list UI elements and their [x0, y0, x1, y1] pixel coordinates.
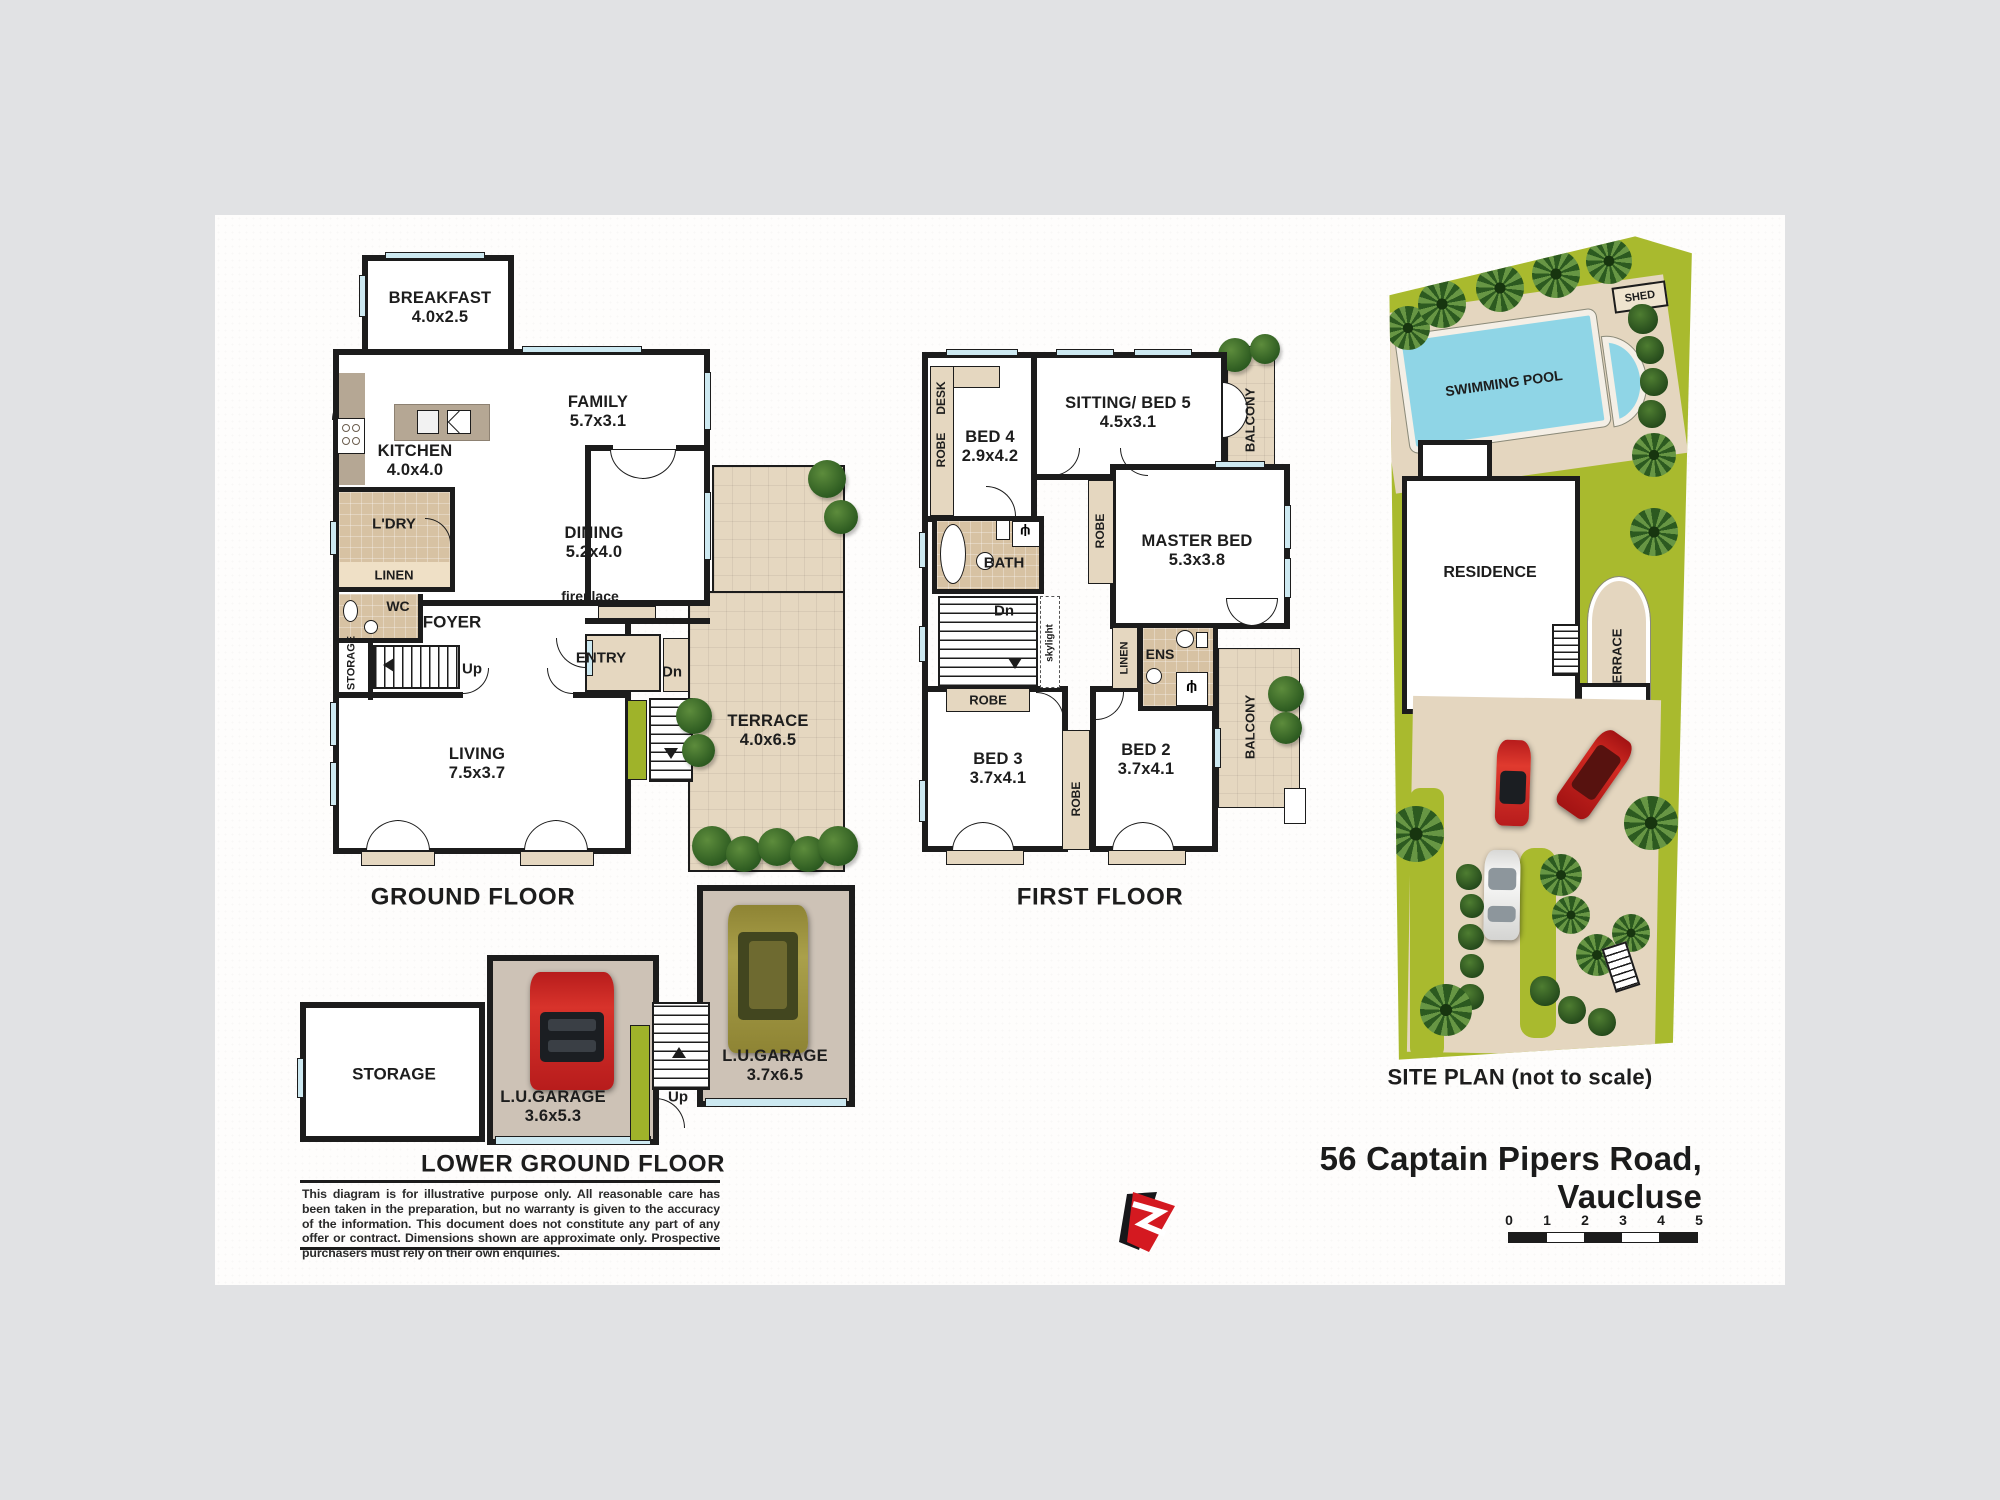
garage-door — [705, 1098, 847, 1107]
door-step-pad — [946, 850, 1024, 865]
label-sitting-bed5: SITTING/ BED 5 4.5x3.1 — [1065, 394, 1191, 432]
label-foyer: FOYER — [423, 612, 482, 631]
label-bed2: BED 2 3.7x4.1 — [1118, 741, 1174, 779]
window — [1284, 505, 1291, 549]
door-step-pad — [1108, 850, 1186, 865]
scale-tick: 2 — [1575, 1212, 1595, 1228]
label-breakfast: BREAKFAST 4.0x2.5 — [389, 289, 492, 327]
label-up: Up — [462, 660, 482, 677]
room-dims: 3.6x5.3 — [500, 1107, 606, 1126]
balcony-post — [1284, 788, 1306, 824]
shower-glyph: ψ — [1020, 524, 1031, 540]
label-balcony-bottom: BALCONY — [1244, 695, 1259, 759]
room-name: BREAKFAST — [389, 289, 492, 308]
site-residence — [1402, 476, 1580, 714]
label-wc: WC — [386, 599, 409, 615]
scale-bar: 0 1 2 3 4 5 — [1502, 1212, 1706, 1248]
shower: ψ — [1176, 672, 1208, 706]
scale-tick: 0 — [1499, 1212, 1519, 1228]
palm-tree — [1552, 896, 1590, 934]
door-step-pad — [361, 851, 435, 866]
red-convertible-car — [1495, 739, 1532, 826]
label-dn-gf: Dn — [662, 663, 682, 680]
title-ground-floor: GROUND FLOOR — [371, 883, 576, 910]
room-name: BED 3 — [970, 750, 1026, 769]
room-dims: 4.0x2.5 — [389, 308, 492, 327]
kitchen-island — [394, 404, 490, 441]
label-dn-ff: Dn — [994, 602, 1014, 619]
tree — [808, 460, 846, 498]
french-doors — [952, 822, 1014, 849]
dishwasher — [447, 410, 471, 434]
room-dims: 3.7x4.1 — [970, 769, 1026, 788]
stove — [337, 418, 365, 454]
shower: ψ — [1012, 521, 1040, 547]
stove-burner — [352, 424, 360, 432]
stove-burner — [342, 424, 350, 432]
title-first-floor: FIRST FLOOR — [1017, 883, 1184, 910]
scale-tick: 5 — [1689, 1212, 1709, 1228]
label-residence: RESIDENCE — [1443, 564, 1536, 582]
palm-tree — [1388, 806, 1444, 862]
window — [359, 275, 366, 317]
window — [297, 1058, 304, 1098]
window — [330, 762, 337, 806]
tree — [824, 500, 858, 534]
tree — [818, 826, 858, 866]
label-skylight: skylight — [1044, 624, 1055, 662]
window — [919, 780, 926, 822]
window — [385, 252, 485, 259]
scale-segment — [1584, 1233, 1622, 1242]
label-up-lgf: Up — [668, 1088, 688, 1105]
toilet — [343, 600, 358, 622]
window — [1056, 349, 1114, 356]
car-windshield — [1488, 868, 1516, 890]
french-doors — [366, 820, 430, 849]
tree — [692, 826, 732, 866]
stairs-arrow — [1008, 658, 1022, 676]
stove-burner — [342, 437, 350, 445]
wall — [676, 445, 710, 451]
car-sunroof — [749, 941, 787, 1009]
cistern — [996, 520, 1010, 540]
room-dims: 5.2x4.0 — [565, 543, 624, 562]
door-step-pad — [520, 851, 594, 866]
bush — [1460, 954, 1484, 978]
bush — [1456, 864, 1482, 890]
scale-bar-segments — [1508, 1232, 1698, 1243]
property-address: 56 Captain Pipers Road, Vaucluse — [1170, 1140, 1702, 1216]
toilet — [1176, 630, 1194, 648]
bush — [1460, 894, 1484, 918]
title-lower-ground-floor: LOWER GROUND FLOOR — [421, 1150, 725, 1177]
label-garage2: L.U.GARAGE 3.7x6.5 — [722, 1047, 828, 1085]
room-name: SITTING/ BED 5 — [1065, 394, 1191, 413]
scale-segment — [1509, 1233, 1547, 1242]
wall — [333, 692, 463, 698]
window — [1134, 349, 1192, 356]
label-desk: DESK — [935, 381, 949, 414]
label-bed4: BED 4 2.9x4.2 — [962, 428, 1018, 466]
tree — [1270, 712, 1302, 744]
label-ens: ENS — [1146, 647, 1175, 663]
label-entry: ENTRY — [576, 649, 626, 666]
palm-tree — [1420, 984, 1472, 1036]
label-garage1: L.U.GARAGE 3.6x5.3 — [500, 1088, 606, 1126]
bush — [1636, 336, 1664, 364]
label-linen: LINEN — [375, 569, 414, 584]
label-robe-master: ROBE — [1094, 514, 1108, 549]
agency-logo — [1113, 1190, 1179, 1254]
label-living: LIVING 7.5x3.7 — [449, 745, 505, 783]
room-name: L.U.GARAGE — [722, 1047, 828, 1066]
label-site-terrace: TERRACE — [1611, 629, 1626, 692]
stairs-arrow — [664, 748, 678, 766]
sink — [417, 410, 439, 434]
french-doors — [1226, 600, 1278, 626]
car-rear-glass — [1488, 906, 1516, 923]
tree — [726, 836, 762, 872]
tree — [682, 734, 715, 767]
wall — [585, 445, 613, 451]
window — [1284, 558, 1291, 598]
site-plan: SWIMMING POOL SHED RESIDENCE TERRACE — [1380, 228, 1695, 1068]
label-fireplace: fireplace — [561, 589, 619, 605]
wall — [585, 618, 710, 624]
site-stairs — [1552, 624, 1580, 676]
wall — [573, 692, 631, 698]
room-dims: 5.7x3.1 — [568, 412, 628, 431]
bathtub — [940, 524, 966, 584]
label-bath: BATH — [984, 554, 1025, 571]
bush — [1458, 924, 1484, 950]
label-dining: DINING 5.2x4.0 — [565, 524, 624, 562]
double-door — [610, 451, 676, 479]
bush — [1530, 976, 1560, 1006]
label-balcony-top: BALCONY — [1244, 388, 1259, 452]
label-bed3: BED 3 3.7x4.1 — [970, 750, 1026, 788]
french-doors — [524, 820, 588, 849]
divider-line — [300, 1247, 720, 1250]
label-terrace: TERRACE 4.0x6.5 — [727, 712, 808, 750]
room-dims: 4.0x6.5 — [727, 731, 808, 750]
french-doors — [1112, 822, 1174, 849]
room-dims: 2.9x4.2 — [962, 447, 1018, 466]
room-name: FAMILY — [568, 393, 628, 412]
room-name: BED 2 — [1118, 741, 1174, 760]
basin — [1146, 668, 1162, 684]
room-dims: 4.5x3.1 — [1065, 413, 1191, 432]
garage-door — [495, 1136, 651, 1145]
scale-segment — [1547, 1233, 1585, 1242]
label-robe-bed4: ROBE — [935, 433, 949, 468]
window — [1214, 728, 1221, 768]
planter-strip — [630, 1025, 650, 1141]
stove-burner — [352, 437, 360, 445]
scale-tick: 1 — [1537, 1212, 1557, 1228]
room-name: BED 4 — [962, 428, 1018, 447]
room-dims: 3.7x6.5 — [722, 1066, 828, 1085]
cistern — [1196, 632, 1208, 648]
bush — [1588, 1008, 1616, 1036]
room-name: MASTER BED — [1141, 532, 1252, 551]
stairs-dn — [938, 596, 1038, 688]
tree — [676, 698, 712, 734]
palm-tree — [1630, 508, 1678, 556]
shower-glyph: ψ — [1186, 679, 1197, 696]
window — [522, 346, 642, 353]
scale-segment — [1659, 1233, 1697, 1242]
car-seats — [548, 1040, 595, 1052]
screenshot-canvas: BREAKFAST 4.0x2.5 FAMILY 5.7x3.1 KITCHEN… — [0, 0, 2000, 1500]
divider-line — [300, 1180, 720, 1183]
disclaimer-text: This diagram is for illustrative purpose… — [302, 1187, 720, 1261]
label-robe-mid: ROBE — [1070, 782, 1084, 817]
stairs-arrow — [376, 658, 394, 672]
bush — [1558, 996, 1586, 1024]
palm-tree — [1624, 796, 1678, 850]
scale-segment — [1622, 1233, 1660, 1242]
title-site-plan: SITE PLAN (not to scale) — [1387, 1064, 1652, 1089]
label-laundry: L'DRY — [372, 515, 416, 532]
scale-tick: 3 — [1613, 1212, 1633, 1228]
scale-tick: 4 — [1651, 1212, 1671, 1228]
bush — [1640, 368, 1668, 396]
tree — [1268, 676, 1304, 712]
bush — [1638, 400, 1666, 428]
label-robe-bed3: ROBE — [969, 694, 1007, 709]
label-storage-gf: STORAGE — [346, 636, 359, 690]
window — [704, 492, 711, 560]
label-storage-lgf: STORAGE — [352, 1064, 436, 1083]
room-name: KITCHEN — [378, 442, 453, 461]
room-name: LIVING — [449, 745, 505, 764]
basin — [364, 620, 378, 634]
room-dims: 5.3x3.8 — [1141, 551, 1252, 570]
palm-tree — [1418, 280, 1466, 328]
room-dims: 3.7x4.1 — [1118, 760, 1174, 779]
white-car — [1483, 850, 1521, 941]
car-seats — [548, 1019, 595, 1031]
tree — [1250, 334, 1280, 364]
room-dims: 4.0x4.0 — [378, 461, 453, 480]
window — [330, 521, 337, 555]
planter-strip — [627, 700, 647, 780]
room-name: L.U.GARAGE — [500, 1088, 606, 1107]
appliance-glyph — [448, 411, 471, 434]
red-convertible-car — [530, 972, 614, 1090]
label-kitchen: KITCHEN 4.0x4.0 — [378, 442, 453, 480]
window — [946, 349, 1018, 356]
window — [704, 372, 711, 430]
car-cabin — [1499, 771, 1526, 805]
label-family: FAMILY 5.7x3.1 — [568, 393, 628, 431]
palm-tree — [1540, 854, 1582, 896]
window — [330, 702, 337, 746]
label-linen-ff: LINEN — [1119, 642, 1132, 675]
agency-logo-mark — [1113, 1190, 1179, 1254]
window — [1215, 461, 1265, 468]
bush — [1628, 304, 1658, 334]
window — [919, 626, 926, 662]
room-name: DINING — [565, 524, 624, 543]
room-dims: 7.5x3.7 — [449, 764, 505, 783]
window — [919, 532, 926, 568]
label-master-bed: MASTER BED 5.3x3.8 — [1141, 532, 1252, 570]
room-name: TERRACE — [727, 712, 808, 731]
stairs-arrow — [672, 1040, 686, 1058]
gold-car — [728, 905, 808, 1053]
palm-tree — [1632, 433, 1676, 477]
